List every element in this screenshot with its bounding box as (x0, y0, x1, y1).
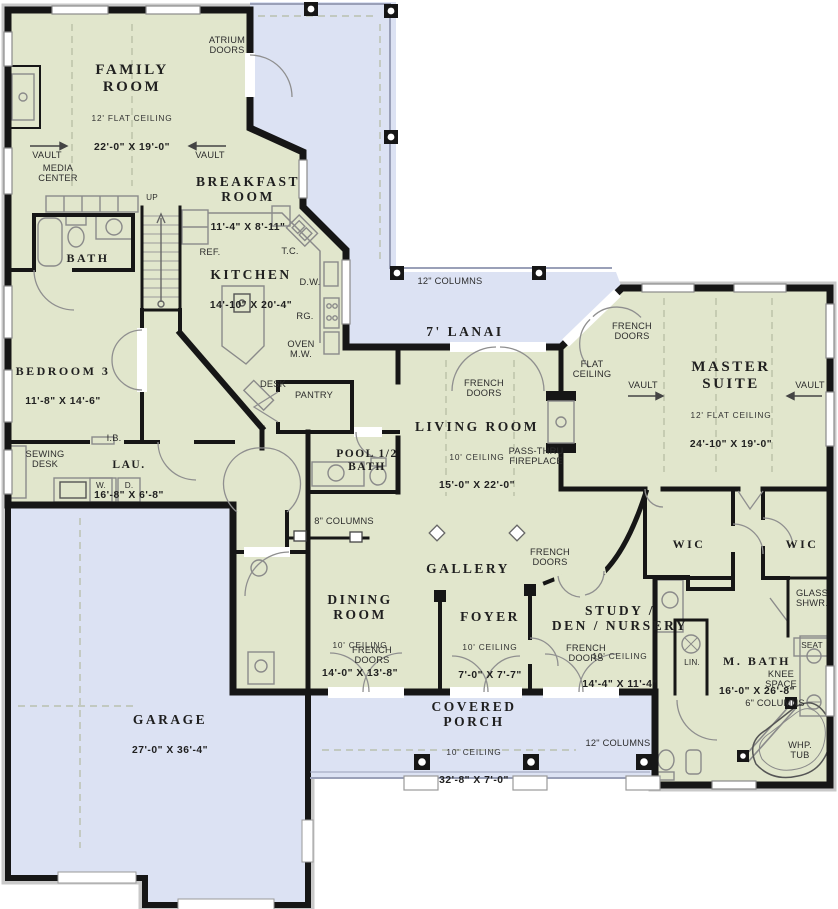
covered-porch-area (308, 692, 652, 778)
floor-plan-drawing (0, 0, 838, 909)
floor-plan-page: FAMILY ROOM 12' FLAT CEILING 22'-0" X 19… (0, 0, 838, 909)
